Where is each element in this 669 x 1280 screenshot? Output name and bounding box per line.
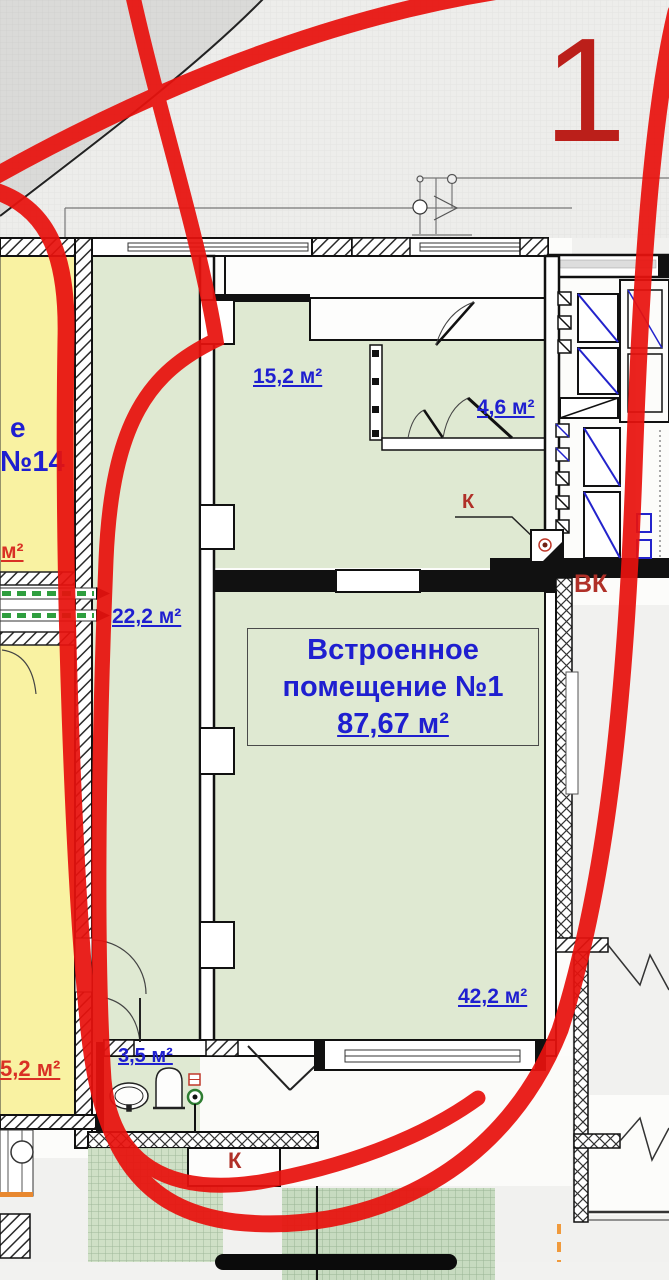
sewer-label-k-bottom: К (228, 1150, 241, 1172)
big-number-annotation: 1 (520, 6, 650, 176)
stair-core (620, 280, 669, 422)
neighbor-apartment-number: №14 (0, 448, 65, 477)
floor-plan-screenshot: е №14 м² 5,2 м² 15,2 м² 4,6 м² 22,2 м² 4… (0, 0, 669, 1280)
room-area-label-3-5: 3,5 м² (118, 1046, 173, 1066)
premises-area: 87,67 м² (337, 706, 449, 743)
break-line (608, 945, 669, 990)
room-area-label-22-2: 22,2 м² (112, 606, 181, 627)
room-area-label-4-6: 4,6 м² (477, 397, 535, 418)
black-marker-bar (215, 1254, 457, 1270)
premises-title-line1: Встроенное (307, 632, 479, 669)
sewer-label-k-top: К (462, 492, 474, 512)
premises-title-line2: помещение №1 (282, 669, 503, 706)
water-label-vk: ВК (574, 572, 607, 597)
neighbor-word-fragment: е (10, 414, 26, 442)
room-area-label-15-2: 15,2 м² (253, 366, 322, 387)
premises-title-box: Встроенное помещение №1 87,67 м² (247, 628, 539, 746)
toilet-icon (153, 1068, 185, 1108)
column-icon (11, 1141, 33, 1163)
neighbor-area-label: 5,2 м² (0, 1058, 60, 1080)
neighbor-area-fragment: м² (1, 541, 24, 562)
room-area-label-42-2: 42,2 м² (458, 986, 527, 1007)
